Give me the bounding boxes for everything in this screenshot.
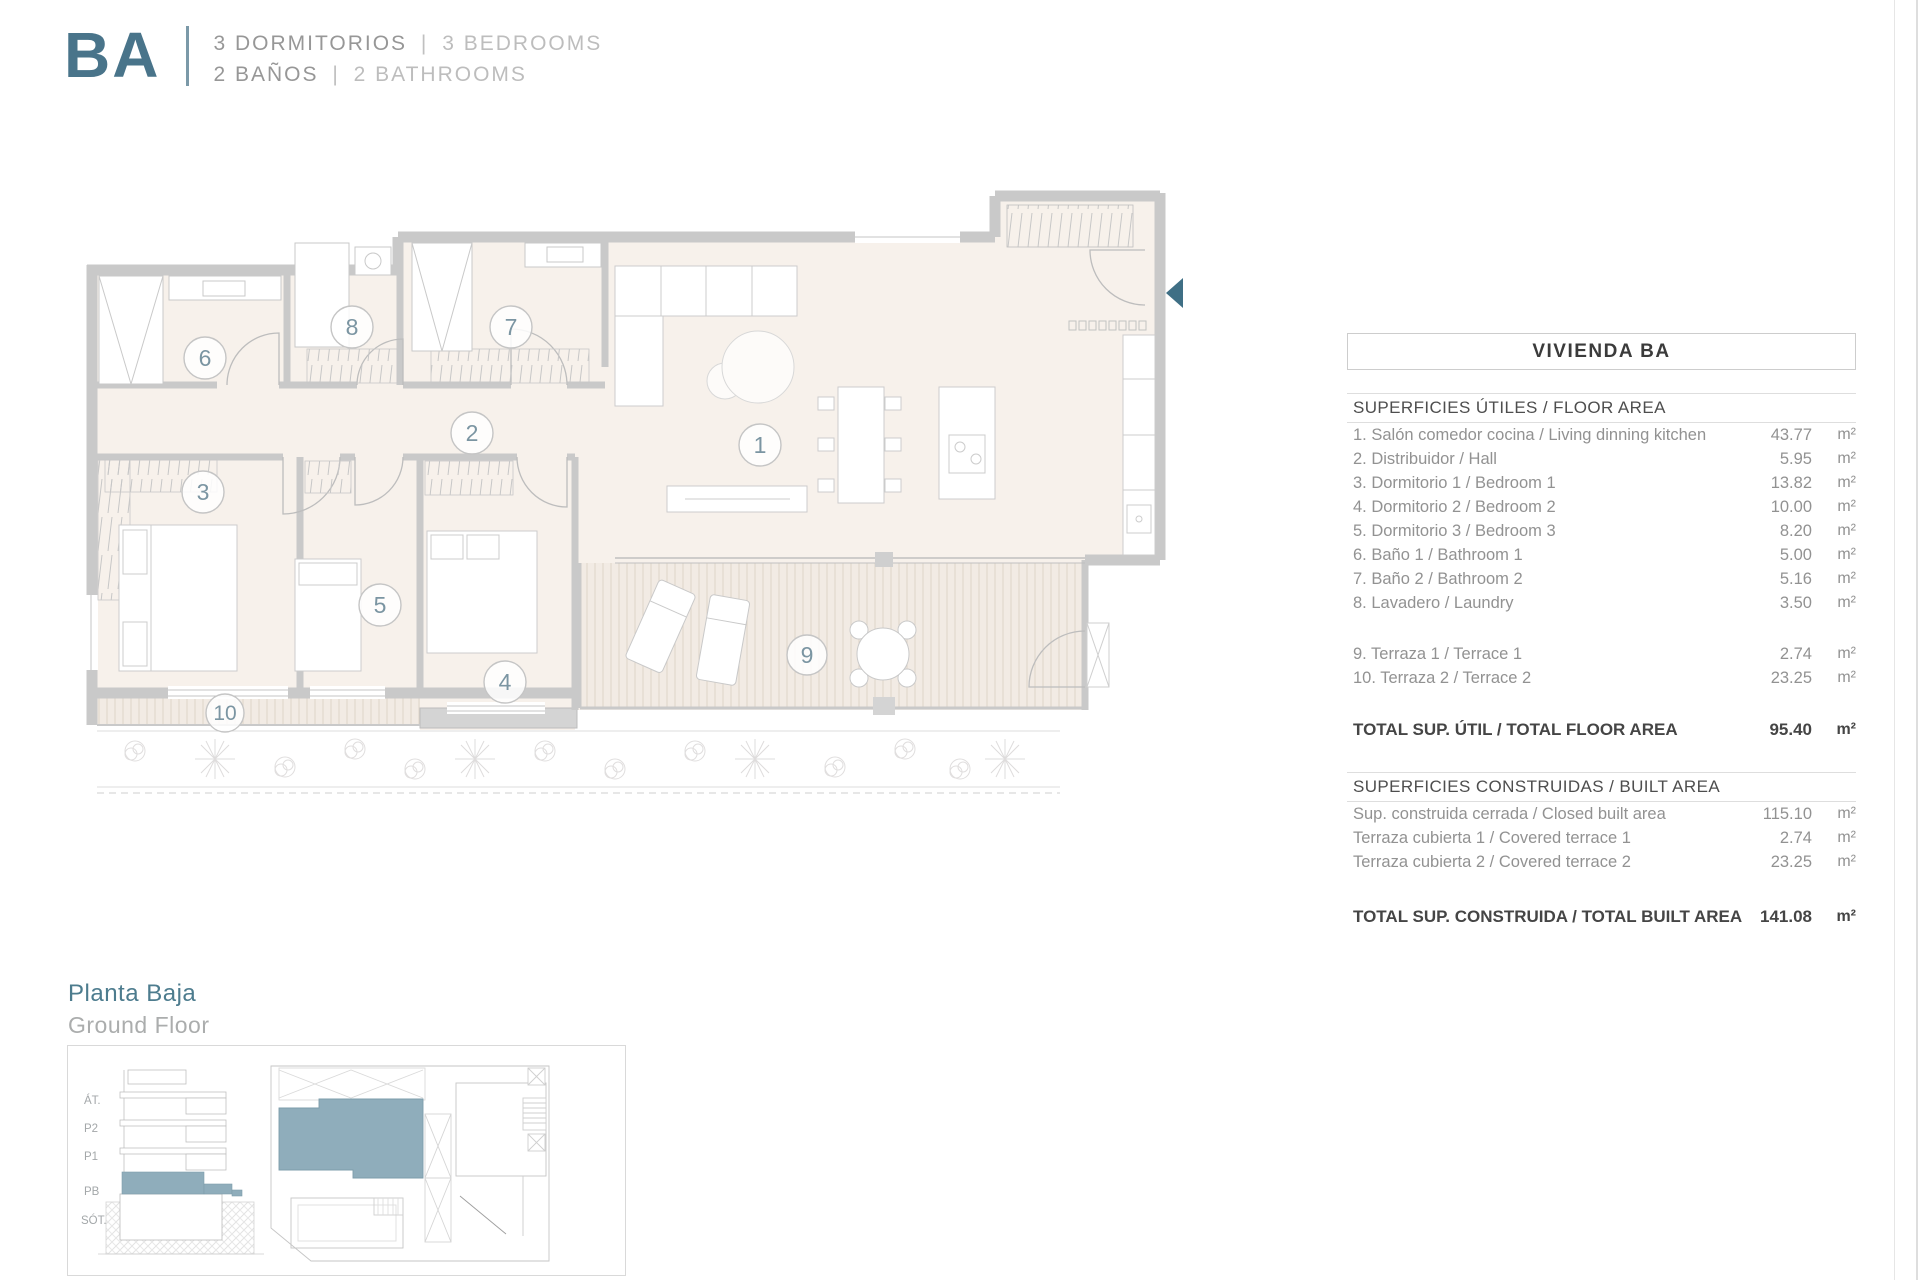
terrace-1-deck: [97, 697, 420, 725]
room-label-10: 10: [213, 702, 236, 725]
room-label-9: 9: [801, 642, 814, 668]
floor-name-es: Planta Baja: [68, 980, 210, 1008]
area-table: VIVIENDA BA SUPERFICIES ÚTILES / FLOOR A…: [1347, 333, 1856, 929]
room-label-6: 6: [199, 345, 212, 371]
bathrooms-en: 2 BATHROOMS: [354, 63, 527, 86]
table-row: 2. Distribuidor / Hall5.95m²: [1347, 447, 1856, 471]
room-label-2: 2: [466, 420, 479, 446]
floor-plan: 1 2 3 4 5 6 7 8 9 10: [55, 135, 1185, 805]
floor-area-header: SUPERFICIES ÚTILES / FLOOR AREA: [1347, 393, 1856, 423]
bedrooms-en: 3 BEDROOMS: [442, 32, 602, 55]
header-divider: [186, 26, 189, 86]
table-row: 9. Terraza 1 / Terrace 12.74m²: [1347, 642, 1856, 666]
separator: |: [326, 63, 345, 86]
unit-code: BA: [64, 22, 160, 88]
room-label-4: 4: [499, 669, 512, 695]
header-specs: 3 DORMITORIOS | 3 BEDROOMS 2 BAÑOS | 2 B…: [213, 22, 602, 90]
level-label-sotano: SÓT.: [81, 1214, 107, 1227]
room-label-7: 7: [505, 314, 518, 340]
table-row: 1. Salón comedor cocina / Living dinning…: [1347, 423, 1856, 447]
page-header: BA 3 DORMITORIOS | 3 BEDROOMS 2 BAÑOS | …: [64, 22, 602, 90]
room-label-3: 3: [197, 479, 210, 505]
floor-name: Planta Baja Ground Floor: [68, 980, 210, 1039]
location-diagrams: ÁT. P2 P1 PB SÓT.: [67, 1045, 626, 1276]
level-label-p1: P1: [84, 1151, 98, 1163]
building-section: ÁT. P2 P1 PB SÓT.: [81, 1070, 264, 1254]
highlighted-unit-site: [279, 1099, 423, 1178]
site-plan: [271, 1066, 549, 1261]
column: [873, 697, 895, 715]
level-label-atico: ÁT.: [84, 1094, 101, 1107]
side-panel: [1087, 623, 1109, 687]
built-area-header: SUPERFICIES CONSTRUIDAS / BUILT AREA: [1347, 772, 1856, 802]
total-built-area-row: TOTAL SUP. CONSTRUIDA / TOTAL BUILT AREA…: [1347, 905, 1856, 929]
table-row: 10. Terraza 2 / Terrace 223.25m²: [1347, 666, 1856, 690]
mini-diagrams-svg: ÁT. P2 P1 PB SÓT.: [68, 1046, 625, 1275]
table-row: 6. Baño 1 / Bathroom 15.00m²: [1347, 543, 1856, 567]
room-label-5: 5: [374, 592, 387, 618]
room-label-1: 1: [754, 432, 767, 458]
table-row: Sup. construida cerrada / Closed built a…: [1347, 802, 1856, 826]
table-title: VIVIENDA BA: [1347, 333, 1856, 370]
column: [875, 552, 893, 567]
separator: |: [415, 32, 434, 55]
bedrooms-es: 3 DORMITORIOS: [213, 32, 407, 55]
planting-bed: [97, 731, 1060, 793]
table-row: 5. Dormitorio 3 / Bedroom 38.20m²: [1347, 519, 1856, 543]
bathrooms-es: 2 BAÑOS: [213, 63, 318, 86]
table-row: 8. Lavadero / Laundry3.50m²: [1347, 591, 1856, 615]
floor-name-en: Ground Floor: [68, 1012, 210, 1039]
bathrooms-line: 2 BAÑOS | 2 BATHROOMS: [213, 59, 602, 90]
highlighted-unit-section: [122, 1172, 242, 1196]
total-floor-area-row: TOTAL SUP. ÚTIL / TOTAL FLOOR AREA95.40m…: [1347, 718, 1856, 742]
table-row: Terraza cubierta 2 / Covered terrace 223…: [1347, 850, 1856, 874]
level-label-p2: P2: [84, 1123, 98, 1135]
page-edge-line: [1894, 0, 1895, 1280]
table-row: 7. Baño 2 / Bathroom 25.16m²: [1347, 567, 1856, 591]
bedrooms-line: 3 DORMITORIOS | 3 BEDROOMS: [213, 28, 602, 59]
entry-arrow-icon: [1166, 278, 1183, 308]
table-row: 3. Dormitorio 1 / Bedroom 113.82m²: [1347, 471, 1856, 495]
level-label-pb: PB: [84, 1186, 100, 1198]
table-row: Terraza cubierta 1 / Covered terrace 12.…: [1347, 826, 1856, 850]
page-edge-line: [1916, 0, 1918, 1280]
room-label-8: 8: [346, 314, 359, 340]
pergola-hatch: [1007, 205, 1133, 247]
table-row: 4. Dormitorio 2 / Bedroom 210.00m²: [1347, 495, 1856, 519]
